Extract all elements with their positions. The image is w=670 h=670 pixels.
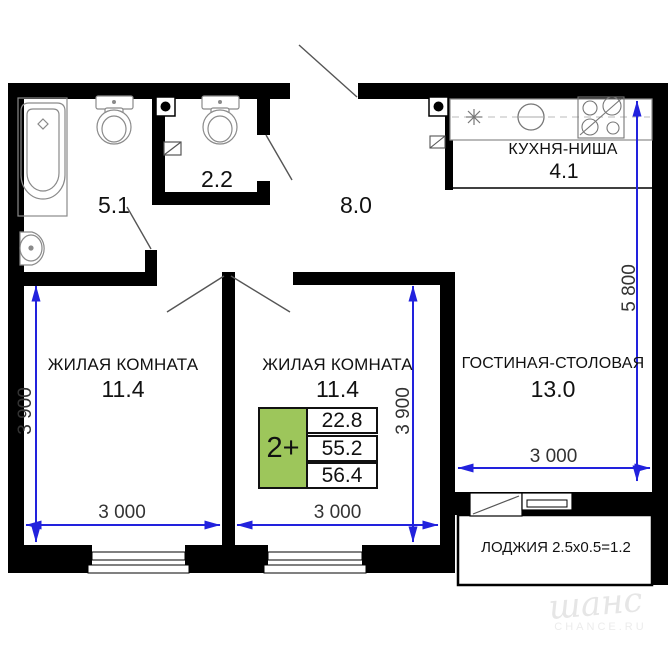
- toilet-icon-bathroom: [96, 96, 133, 144]
- window-living2: [264, 545, 366, 573]
- room-area-living1: 11.4: [24, 377, 222, 403]
- dim-living2-width: 3 000: [237, 502, 438, 523]
- floor-plan: ЖИЛАЯ КОМНАТА 11.4 ЖИЛАЯ КОМНАТА 11.4 ГО…: [0, 0, 670, 670]
- room-area-hall: 8.0: [321, 193, 391, 219]
- badge-area-row1: 22.8: [306, 407, 378, 434]
- bathroom-sink-icon: [20, 232, 44, 265]
- dim-dining-width: 3 000: [457, 446, 650, 467]
- badge-area-row3: 56.4: [306, 462, 378, 489]
- dim-right-height: 5 800: [619, 238, 639, 338]
- room-area-wc: 2.2: [182, 167, 252, 193]
- asterisk-symbol: [466, 109, 482, 125]
- loggia-window: [522, 493, 572, 510]
- toilet-icon-wc: [202, 96, 239, 144]
- room-label-living1: ЖИЛАЯ КОМНАТА: [24, 355, 222, 374]
- entrance-door-swing: [299, 45, 357, 97]
- living2-door-swing: [231, 276, 290, 312]
- washer-symbol-kitchen: [430, 136, 445, 148]
- floor-plan-drawing: [0, 0, 670, 670]
- room-area-dining: 13.0: [456, 377, 650, 403]
- dim-living2-height: 3 900: [393, 361, 413, 461]
- dim-living1-width: 3 000: [24, 502, 220, 523]
- vent-icon-wc: [156, 97, 175, 116]
- dim-living1-height: 3 900: [15, 361, 35, 461]
- badge-room-count: 2+: [258, 407, 308, 489]
- room-label-dining: ГОСТИНАЯ-СТОЛОВАЯ: [456, 355, 650, 373]
- window-living1: [88, 545, 189, 573]
- vent-icon-kitchen: [429, 97, 448, 116]
- room-area-bathroom: 5.1: [79, 193, 149, 219]
- watermark-caption: CHANCE.RU: [548, 621, 653, 633]
- loggia-label: ЛОДЖИЯ 2.5x0.5=1.2: [462, 540, 650, 557]
- room-label-kitchen: КУХНЯ-НИША: [465, 141, 661, 159]
- bathtub-icon: [18, 98, 67, 216]
- wc-door-swing: [266, 135, 292, 180]
- badge-area-row2: 55.2: [306, 435, 378, 462]
- room-area-kitchen: 4.1: [529, 160, 599, 184]
- washer-symbol-wc: [164, 142, 181, 155]
- living1-door-swing: [167, 276, 224, 312]
- loggia-door: [470, 493, 522, 516]
